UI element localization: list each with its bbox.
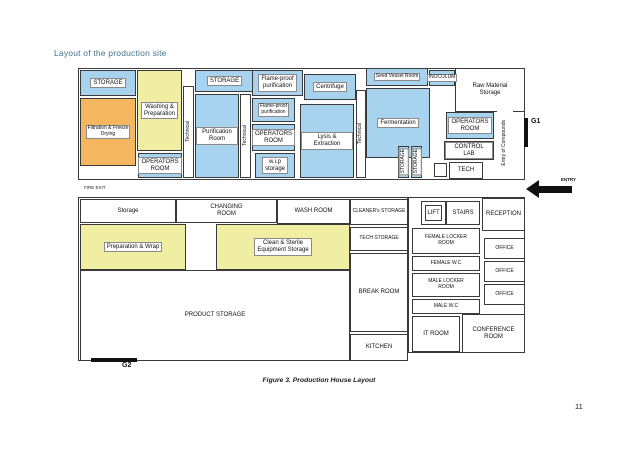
room-female-locker-room: FEMALE LOCKER ROOM: [412, 228, 480, 254]
room-storage-1: STORAGE: [80, 70, 136, 96]
room-kitchen: KITCHEN: [350, 334, 408, 361]
room-office-1: OFFICE: [484, 238, 525, 259]
room-washing-preparation: Washing & Preparation: [137, 70, 182, 151]
room-operators-room-3: OPERATORS ROOM: [446, 112, 494, 139]
room-washing-preparation-label: Washing & Preparation: [141, 102, 178, 120]
room-technical-2: Technical: [240, 94, 251, 178]
room-tech: TECH: [449, 162, 483, 179]
room-lysis-extraction: Lysis & Extraction: [300, 104, 354, 178]
room-technical-3: Technical: [356, 90, 366, 178]
room-break-room-label: BREAK ROOM: [359, 289, 400, 296]
room-stairs: STAIRS: [446, 201, 480, 225]
room-filtration-freeze-drying: Filtration & Freeze Drying: [80, 98, 136, 166]
fire-exit-label: FIRE EXIT: [84, 185, 106, 190]
room-female-wc: FEMALE W.C: [412, 256, 480, 271]
room-female-wc-label: FEMALE W.C: [430, 260, 463, 267]
entry-label: ENTRY: [561, 177, 576, 182]
room-operators-room-2-label: OPERATORS ROOM: [252, 129, 295, 147]
room-male-locker-room-label: MALE LOCKER ROOM: [427, 279, 465, 292]
room-clean-sterile-equipment-storage: Clean & Sterile Equipment Storage: [216, 224, 350, 270]
room-technical-2-label: Technical: [242, 125, 250, 147]
room-office-2: OFFICE: [484, 261, 525, 282]
room-seed-vessel-room: Seed Vessel Room: [366, 68, 428, 86]
room-it-room-label: IT ROOM: [423, 331, 449, 338]
gate-g2-label: G2: [122, 362, 131, 369]
room-raw-material-storage: Raw Material Storage: [455, 68, 525, 112]
room-seed-vessel-room-label: Seed Vessel Room: [374, 73, 421, 82]
room-operators-room-3-label: OPERATORS ROOM: [448, 117, 491, 135]
room-small-closet: [434, 163, 447, 177]
gate-g1-label: G1: [531, 118, 540, 125]
room-storage-3-label: STORAGE: [399, 148, 409, 175]
room-reception-label: RECEPTION: [486, 211, 521, 218]
page-number: 11: [575, 402, 583, 411]
room-inoculum-label: INOCULUM: [427, 74, 458, 83]
room-conference-room: CONFERENCE ROOM: [462, 314, 525, 353]
room-preparation-wrap-label: Preparation & Wrap: [104, 242, 163, 253]
room-product-storage: PRODUCT STORAGE: [80, 270, 350, 361]
figure-caption: Figure 3. Production House Layout: [0, 377, 638, 384]
room-flameproof-purification-1-label: Flame-proof purification: [258, 74, 296, 92]
room-storage-5-label: Storage: [117, 208, 138, 215]
room-operators-room-1-label: OPERATORS ROOM: [138, 157, 181, 175]
entry-marker: ENTRY: [524, 177, 578, 199]
room-changing-room: CHANGING ROOM: [176, 199, 277, 223]
room-technical-1-label: Technical: [185, 121, 193, 143]
room-cleaners-storage-label: CLEANER's STORAGE: [352, 209, 407, 216]
room-tech-storage-label: TECH STORAGE: [358, 236, 399, 243]
room-wip-storage-label: w.i.p storage: [262, 157, 288, 175]
room-purification-room-label: Purification Room: [196, 127, 238, 145]
room-reception: RECEPTION: [482, 198, 525, 231]
entry-arrow-icon: [538, 186, 572, 193]
room-wip-storage: w.i.p storage: [255, 153, 295, 178]
room-storage-4-label: STORAGE: [412, 148, 422, 175]
room-changing-room-label: CHANGING ROOM: [210, 204, 242, 218]
room-wash-room-label: WASH ROOM: [294, 208, 332, 215]
room-office-3: OFFICE: [484, 284, 525, 305]
room-office-2-label: OFFICE: [494, 268, 514, 275]
document-page: Layout of the production site STORAGEWas…: [0, 0, 638, 451]
room-lift-label: LIFT: [427, 210, 439, 217]
room-storage-5: Storage: [80, 199, 176, 223]
room-inoculum: INOCULUM: [429, 70, 455, 86]
room-stairs-label: STAIRS: [452, 210, 473, 217]
room-storage-2: STORAGE: [195, 70, 254, 92]
room-conference-room-label: CONFERENCE ROOM: [472, 327, 514, 341]
room-lift: LIFT: [421, 201, 446, 225]
room-clean-sterile-equipment-storage-label: Clean & Sterile Equipment Storage: [254, 238, 311, 256]
room-female-locker-room-label: FEMALE LOCKER ROOM: [424, 235, 468, 248]
entry-arrow-head-icon: [526, 180, 539, 198]
room-flameproof-purification-1: Flame-proof purification: [252, 70, 303, 96]
room-centrifuge-label: Centrifuge: [313, 82, 347, 93]
room-technical-1: Technical: [183, 86, 194, 178]
room-control-lab-label: CONTROL LAB: [445, 142, 493, 160]
room-storage-1-label: STORAGE: [90, 78, 125, 89]
room-preparation-wrap: Preparation & Wrap: [80, 224, 186, 270]
room-technical-3-label: Technical: [357, 123, 365, 145]
room-entry-of-compounds: Entry of Compounds: [497, 110, 513, 176]
room-operators-room-1: OPERATORS ROOM: [138, 153, 182, 178]
room-office-3-label: OFFICE: [494, 291, 514, 298]
room-operators-room-2: OPERATORS ROOM: [252, 124, 295, 151]
room-kitchen-label: KITCHEN: [366, 344, 392, 351]
room-purification-room: Purification Room: [195, 94, 239, 178]
room-flameproof-purification-2: Flame-proof purification: [252, 98, 295, 122]
room-product-storage-label: PRODUCT STORAGE: [185, 312, 245, 319]
room-fermentation-label: Fermentation: [377, 118, 418, 129]
room-office-1-label: OFFICE: [494, 245, 514, 252]
room-storage-3: STORAGE: [398, 146, 409, 178]
room-male-wc-label: MALE W.C: [433, 303, 459, 310]
room-male-wc: MALE W.C: [412, 299, 480, 314]
room-lysis-extraction-label: Lysis & Extraction: [301, 132, 353, 150]
room-flameproof-purification-2-label: Flame-proof purification: [258, 103, 289, 118]
room-raw-material-storage-label: Raw Material Storage: [472, 83, 507, 97]
room-filtration-freeze-drying-label: Filtration & Freeze Drying: [86, 125, 131, 140]
room-cleaners-storage: CLEANER's STORAGE: [350, 199, 408, 225]
room-break-room: BREAK ROOM: [350, 253, 408, 332]
room-storage-2-label: STORAGE: [207, 76, 242, 87]
room-tech-storage: TECH STORAGE: [350, 227, 408, 251]
room-entry-of-compounds-label: Entry of Compounds: [501, 120, 509, 167]
room-tech-label: TECH: [458, 167, 474, 174]
room-male-locker-room: MALE LOCKER ROOM: [412, 273, 480, 297]
room-centrifuge: Centrifuge: [304, 74, 356, 100]
page-title: Layout of the production site: [54, 48, 167, 58]
room-it-room: IT ROOM: [412, 316, 460, 352]
room-control-lab: CONTROL LAB: [444, 141, 494, 160]
gate-g1-bar: [524, 118, 528, 147]
room-storage-4: STORAGE: [411, 146, 422, 178]
room-wash-room: WASH ROOM: [277, 199, 350, 224]
